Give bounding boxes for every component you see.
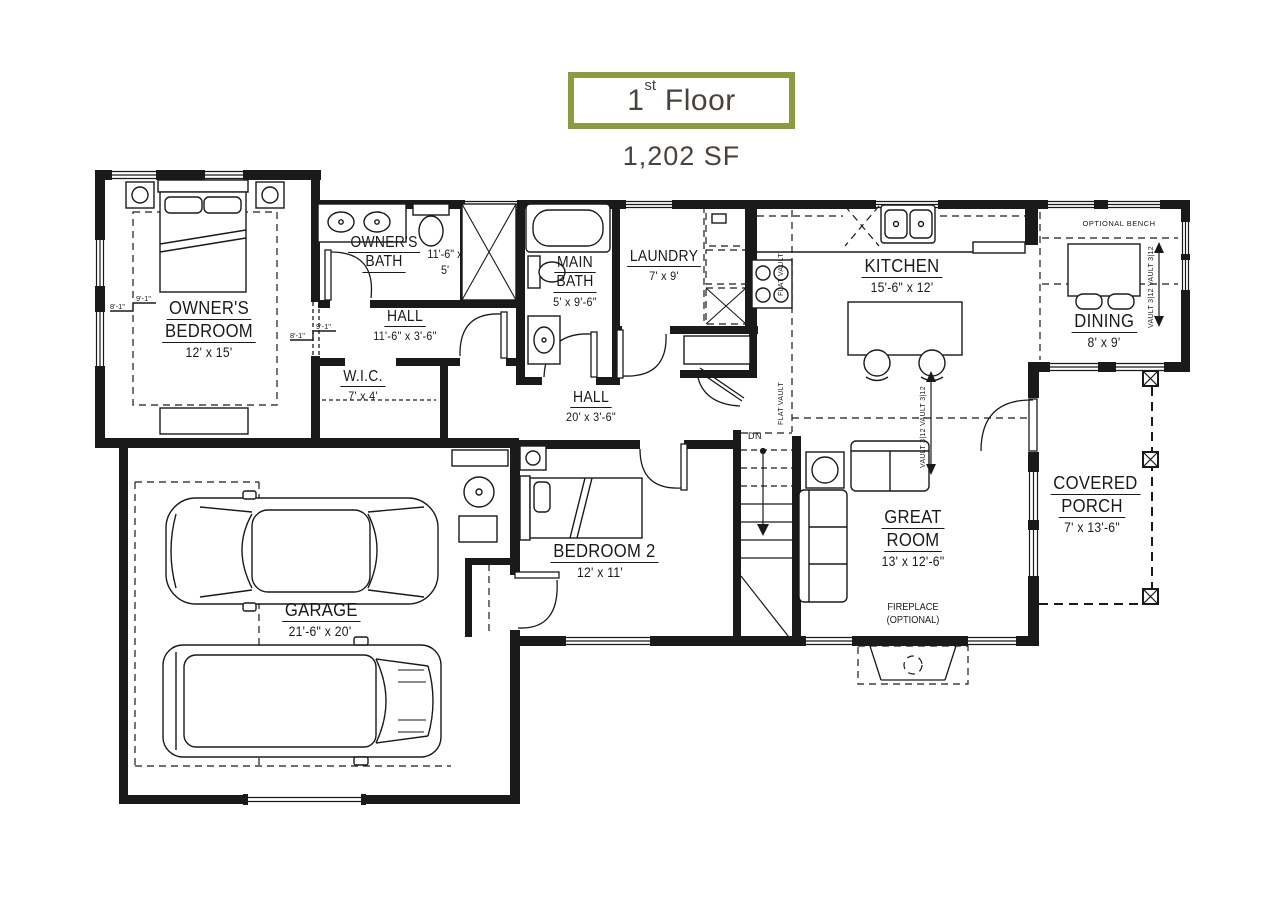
floor-title: 1st Floor [627, 84, 736, 118]
room-label-wic: W.I.C. 7' x 4' [333, 368, 392, 403]
room-label-great-room: GREAT ROOM 13' x 12'-6" [876, 506, 950, 570]
room-label-kitchen: KITCHEN 15'-6" x 12' [857, 255, 947, 296]
floor-plan-drawing [0, 0, 1275, 913]
ceiling-height-8ft-left: 8'-1" [110, 302, 125, 311]
room-label-laundry: LAUNDRY 7' x 9' [623, 248, 706, 283]
sofa-icon [799, 490, 847, 602]
loveseat-icon [851, 441, 929, 491]
kitchen-island-icon [848, 302, 962, 381]
floor-plan-page: { "header": { "title_number": "1", "titl… [0, 0, 1275, 913]
room-label-hall-main: HALL 20' x 3'-6" [554, 389, 628, 424]
room-label-owners-bath: OWNER'S BATH [343, 234, 426, 273]
flat-vault-note-hall: FLAT VAULT [778, 382, 785, 425]
title-superscript: st [644, 77, 656, 94]
floor-area-label: 1,202 SF [568, 141, 795, 172]
ceiling-height-8ft-right: 8'-1" [290, 331, 305, 340]
pantry-shelf-icon [684, 336, 750, 364]
sedan-car-icon [166, 491, 438, 611]
floor-title-box: 1st Floor [568, 72, 795, 129]
stove-icon [752, 260, 792, 308]
room-label-owners-bedroom: OWNER'S BEDROOM 12' x 15' [156, 297, 262, 361]
washer-dryer-icon [712, 214, 726, 223]
stairs [741, 449, 792, 642]
optional-bench-note: OPTIONAL BENCH [1076, 219, 1162, 228]
room-label-bedroom-2: BEDROOM 2 12' x 11' [551, 540, 650, 581]
shower-icon [462, 204, 516, 300]
room-dims-owners-bath: 11'-6" x 5' [426, 247, 464, 278]
bedroom2-bed-icon [520, 446, 642, 540]
room-label-garage: GARAGE 21'-6" x 20' [282, 599, 358, 640]
ceiling-height-9ft-left: 9'-1" [136, 294, 151, 303]
side-table-icon [806, 452, 844, 488]
vanity-icon [528, 316, 560, 364]
stairs-down-label: DN [748, 431, 762, 441]
porch-posts [1143, 371, 1158, 604]
room-label-dining: DINING 8' x 9' [1072, 310, 1137, 351]
vault-slope-note-kitchen: VAULT 3|12 VAULT 3|12 [920, 386, 927, 468]
room-label-hall-upper: HALL 11'-6" x 3'-6" [360, 308, 450, 343]
suv-car-icon [163, 637, 441, 765]
ceiling-height-9ft-right: 9'-1" [316, 322, 331, 331]
water-heater-icon [452, 450, 508, 542]
room-label-covered-porch: COVERED PORCH 7' x 13'-6" [1051, 472, 1134, 536]
room-label-main-bath: MAIN BATH 5' x 9'-6" [549, 254, 601, 309]
kitchen-sink-icon [757, 205, 1025, 253]
flat-vault-note-kitchen: FLAT VAULT [778, 253, 785, 296]
fireplace-note: FIREPLACE (OPTIONAL) [871, 601, 956, 627]
dining-table-icon [1068, 244, 1140, 309]
bathtub-icon [526, 204, 610, 252]
fireplace-icon [870, 646, 956, 680]
vault-slope-note-dining: VAULT 3|12 VAULT 3|12 [1148, 246, 1155, 328]
